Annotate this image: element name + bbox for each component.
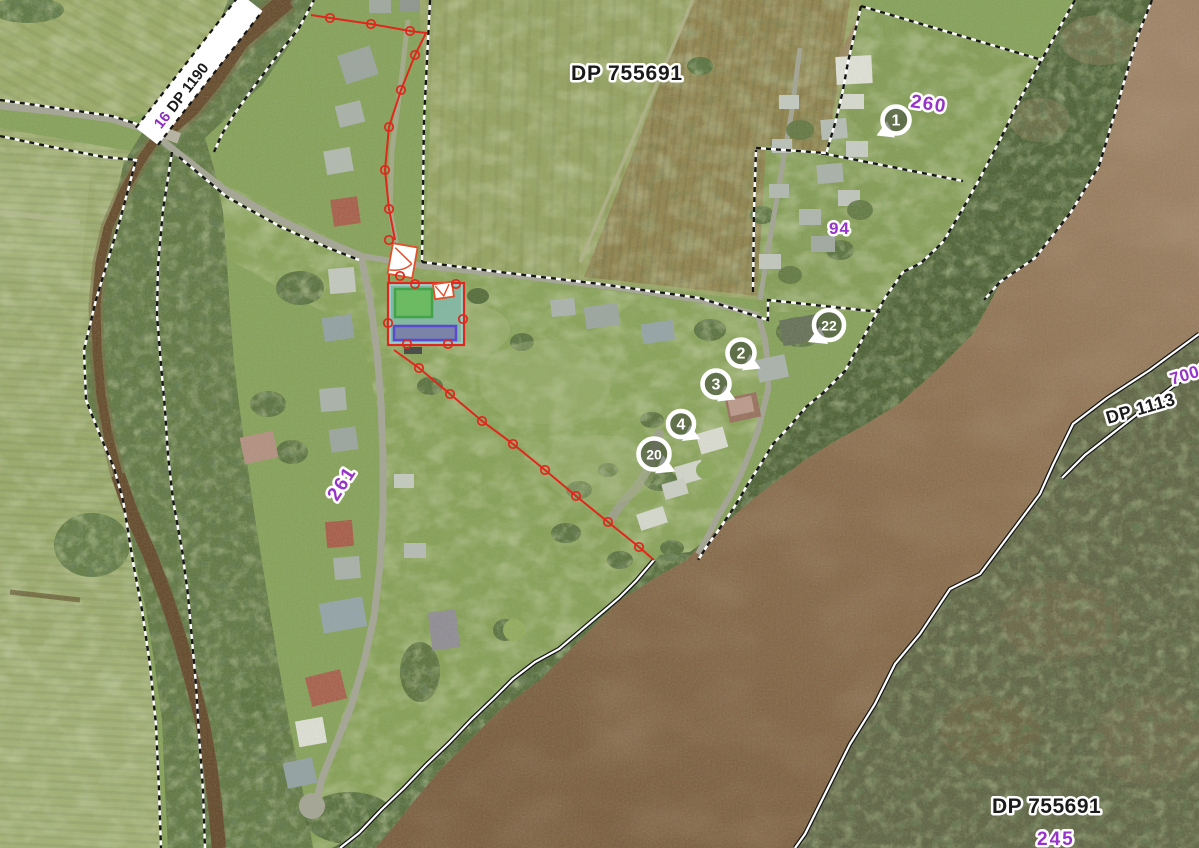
svg-text:22: 22 bbox=[821, 318, 837, 334]
svg-text:DP 755691: DP 755691 bbox=[992, 795, 1101, 818]
svg-text:3: 3 bbox=[712, 377, 721, 394]
svg-text:245: 245 bbox=[1037, 829, 1075, 848]
svg-text:1: 1 bbox=[892, 113, 901, 130]
svg-text:2: 2 bbox=[737, 346, 746, 363]
svg-text:DP 755691: DP 755691 bbox=[571, 62, 683, 85]
svg-text:4: 4 bbox=[677, 417, 686, 434]
svg-text:94: 94 bbox=[829, 219, 850, 238]
svg-text:20: 20 bbox=[646, 447, 662, 463]
